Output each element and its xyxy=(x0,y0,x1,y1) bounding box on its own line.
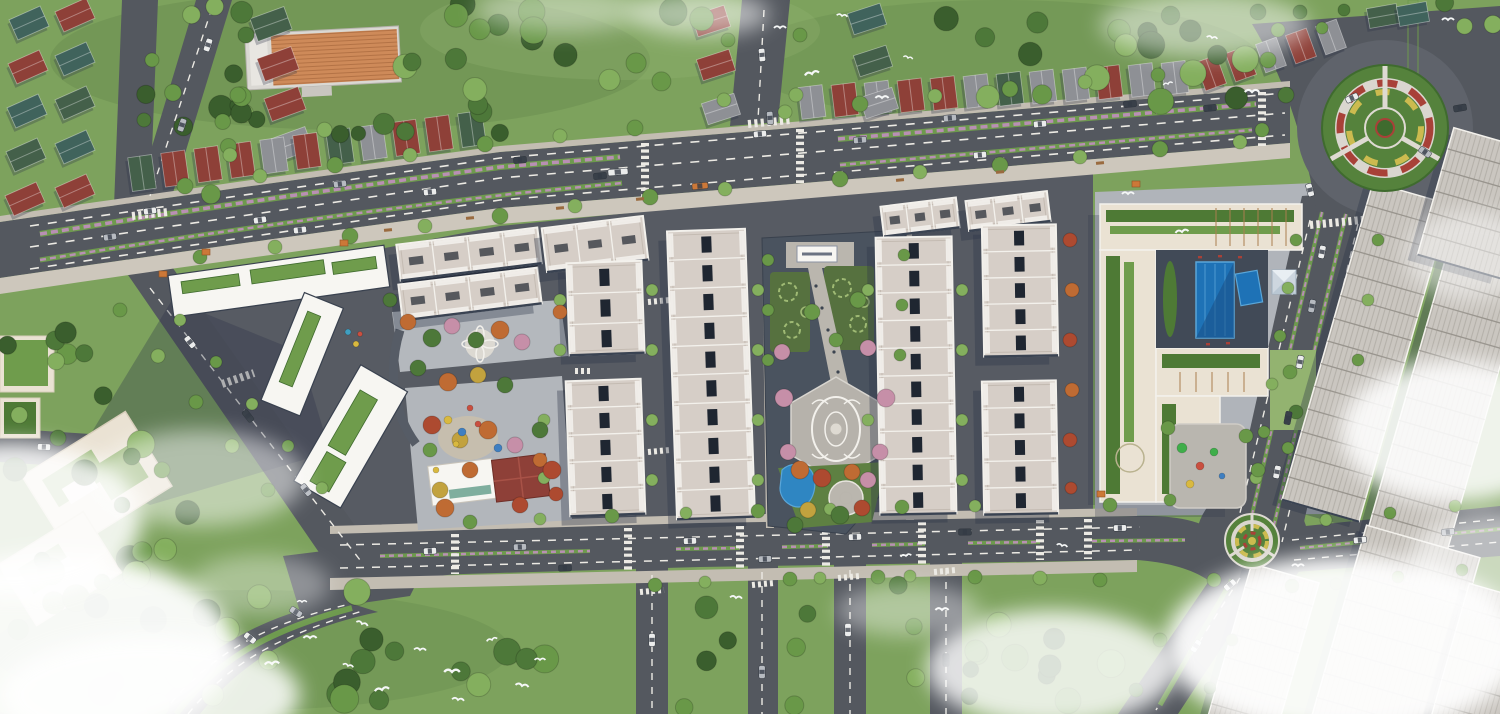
umbrella-canopy xyxy=(159,271,167,277)
tree xyxy=(1352,354,1364,366)
main-roundabout xyxy=(1322,65,1448,191)
tree xyxy=(898,249,910,261)
car xyxy=(973,151,987,159)
tree xyxy=(1384,507,1396,519)
tree xyxy=(699,576,711,588)
tree xyxy=(1063,433,1077,447)
tree xyxy=(48,353,65,370)
tree xyxy=(721,33,735,47)
cloud xyxy=(190,555,330,615)
car xyxy=(1033,120,1047,128)
tree xyxy=(789,88,803,102)
tree xyxy=(804,304,820,320)
swimming-pool-small xyxy=(1235,270,1262,305)
tree xyxy=(183,6,201,24)
tree xyxy=(215,114,231,130)
tree xyxy=(871,570,885,584)
car xyxy=(649,634,655,647)
tree xyxy=(956,344,968,356)
tree xyxy=(956,284,968,296)
tree xyxy=(1225,87,1248,110)
umbrella-canopy xyxy=(340,240,348,246)
tree xyxy=(1362,294,1374,306)
tree xyxy=(800,502,816,518)
car xyxy=(848,534,861,541)
tree xyxy=(516,648,537,669)
tree xyxy=(697,651,717,671)
tree xyxy=(514,334,530,350)
rowhouse-block xyxy=(867,236,957,523)
tree xyxy=(719,632,736,649)
tree xyxy=(553,305,567,319)
tree xyxy=(762,354,774,366)
tree xyxy=(94,387,112,405)
house xyxy=(125,154,157,194)
tree xyxy=(852,96,868,112)
tree xyxy=(752,474,764,486)
tree xyxy=(1152,141,1168,157)
car xyxy=(593,172,607,180)
play-equipment xyxy=(453,441,459,447)
tree xyxy=(230,87,246,103)
tree xyxy=(1316,22,1328,34)
tree xyxy=(201,185,220,204)
tree xyxy=(396,123,414,141)
car xyxy=(1203,104,1217,112)
tree xyxy=(423,416,441,434)
tree xyxy=(793,28,807,42)
rowhouse-block xyxy=(973,380,1058,523)
tree xyxy=(627,120,643,136)
tree xyxy=(554,344,566,356)
car xyxy=(293,226,307,234)
tree xyxy=(1063,333,1077,347)
tree xyxy=(894,349,906,361)
tree xyxy=(332,125,349,142)
tree xyxy=(549,487,563,501)
tree xyxy=(646,284,658,296)
tree xyxy=(507,437,523,453)
tree xyxy=(1063,233,1077,247)
tree xyxy=(383,293,397,307)
cloud xyxy=(836,584,980,636)
tree xyxy=(113,303,127,317)
tree xyxy=(0,336,17,354)
tree xyxy=(1065,482,1077,494)
tree xyxy=(831,506,849,524)
tree xyxy=(268,240,282,254)
car xyxy=(558,565,571,572)
play-equipment xyxy=(433,467,439,473)
tree xyxy=(210,356,222,368)
tree xyxy=(225,65,243,83)
tree xyxy=(751,504,765,518)
tree xyxy=(799,605,816,622)
tree xyxy=(1032,85,1052,105)
tree xyxy=(206,0,224,15)
tree xyxy=(534,513,546,525)
tree xyxy=(695,596,718,619)
tree xyxy=(189,395,203,409)
play-equipment xyxy=(1186,480,1194,488)
tree xyxy=(418,219,432,233)
tree xyxy=(423,329,441,347)
tree xyxy=(410,360,426,376)
tree xyxy=(1164,494,1176,506)
tree xyxy=(470,367,486,383)
tree xyxy=(1239,429,1253,443)
play-equipment xyxy=(444,416,452,424)
tree xyxy=(492,208,508,224)
play-equipment xyxy=(467,405,473,411)
tree xyxy=(762,254,774,266)
tree xyxy=(246,398,258,410)
fountain-center xyxy=(830,423,842,435)
house xyxy=(290,132,322,172)
play-equipment xyxy=(494,444,502,452)
play-equipment xyxy=(1219,473,1225,479)
tree xyxy=(532,422,548,438)
car xyxy=(683,538,696,545)
tree xyxy=(463,78,487,102)
tree xyxy=(680,507,692,519)
house xyxy=(191,146,223,186)
tree xyxy=(860,472,876,488)
tree xyxy=(1258,426,1270,438)
tree xyxy=(913,165,927,179)
tree xyxy=(829,333,843,347)
car xyxy=(753,130,767,138)
tree xyxy=(626,53,646,73)
play-equipment xyxy=(345,329,351,335)
tree xyxy=(1233,135,1247,149)
tree xyxy=(50,430,66,446)
tree xyxy=(1027,12,1048,33)
tree xyxy=(646,474,658,486)
tree xyxy=(423,443,437,457)
car xyxy=(853,136,867,144)
tree xyxy=(785,696,804,714)
tree xyxy=(1018,42,1042,66)
tree xyxy=(642,189,658,205)
car xyxy=(513,156,527,164)
aerial-masterplan-render xyxy=(0,0,1500,714)
tree xyxy=(895,500,909,514)
tree xyxy=(445,48,466,69)
tree xyxy=(231,1,253,23)
tree xyxy=(1065,383,1079,397)
tree xyxy=(780,444,796,460)
tree xyxy=(1151,68,1165,82)
car xyxy=(758,48,766,62)
tree xyxy=(1161,421,1175,435)
tree xyxy=(717,93,731,107)
tree xyxy=(1282,282,1294,294)
tree xyxy=(1266,378,1278,390)
tree xyxy=(1372,234,1384,246)
tree xyxy=(814,572,826,584)
tree xyxy=(791,461,809,479)
car xyxy=(758,556,771,563)
tree xyxy=(436,499,454,517)
tree xyxy=(1148,88,1174,114)
tree xyxy=(1002,81,1018,97)
tree xyxy=(439,373,457,391)
tree xyxy=(432,482,448,498)
tree xyxy=(543,461,561,479)
south-playground xyxy=(1170,424,1246,508)
play-equipment xyxy=(1177,443,1187,453)
tree xyxy=(646,414,658,426)
tree xyxy=(568,199,582,213)
tree xyxy=(872,444,888,460)
tree xyxy=(1278,87,1294,103)
tree xyxy=(497,377,513,393)
tree xyxy=(652,72,671,91)
tree xyxy=(360,628,383,651)
tree xyxy=(385,642,404,661)
tree xyxy=(904,570,916,582)
tree xyxy=(844,464,860,480)
tree xyxy=(976,85,999,108)
umbrella-canopy xyxy=(1132,181,1140,187)
tree xyxy=(1260,52,1276,68)
play-equipment xyxy=(458,428,466,436)
tree xyxy=(462,462,478,478)
tree xyxy=(174,314,186,326)
tree xyxy=(783,572,797,586)
tree xyxy=(1282,442,1294,454)
tree xyxy=(11,407,28,424)
tree xyxy=(934,6,958,30)
tree xyxy=(1255,123,1269,137)
tree xyxy=(1283,365,1297,379)
umbrella-canopy xyxy=(1097,491,1105,497)
tree xyxy=(860,340,876,356)
tree xyxy=(444,4,468,28)
car xyxy=(692,182,708,190)
tree xyxy=(463,515,477,529)
tree xyxy=(1251,463,1265,477)
tree xyxy=(1457,18,1473,34)
tree xyxy=(646,344,658,356)
tree xyxy=(787,638,806,657)
tree xyxy=(177,178,193,194)
tree xyxy=(145,53,159,67)
tree xyxy=(752,344,764,356)
umbrella-canopy xyxy=(202,249,210,255)
car xyxy=(958,529,971,536)
tree xyxy=(137,85,155,103)
scene-svg xyxy=(0,0,1500,714)
tree xyxy=(223,148,237,162)
tree xyxy=(512,497,528,513)
tree xyxy=(832,171,848,187)
tree xyxy=(1484,15,1500,33)
tree xyxy=(928,89,942,103)
tree xyxy=(238,27,254,43)
tree xyxy=(1093,573,1107,587)
tree xyxy=(1290,234,1302,246)
tree xyxy=(1065,283,1079,297)
tree xyxy=(752,284,764,296)
tree xyxy=(896,299,908,311)
tree xyxy=(330,685,359,714)
car xyxy=(943,114,957,122)
tree xyxy=(554,43,577,66)
tree xyxy=(491,321,509,339)
car xyxy=(766,111,773,124)
tree xyxy=(403,148,417,162)
rowhouse-block xyxy=(658,229,755,529)
tree xyxy=(775,389,793,407)
tree xyxy=(1274,330,1286,342)
rowhouse-block xyxy=(557,261,644,365)
tree xyxy=(165,84,182,101)
tree xyxy=(968,570,982,584)
car xyxy=(1113,525,1126,532)
tree xyxy=(469,19,490,40)
tree xyxy=(862,414,874,426)
car xyxy=(513,544,526,551)
cloud xyxy=(95,430,305,526)
tree xyxy=(975,28,994,47)
tree xyxy=(467,673,491,697)
car xyxy=(759,666,765,679)
tree xyxy=(316,482,328,494)
tree xyxy=(553,129,567,143)
play-equipment xyxy=(1196,462,1204,470)
tree xyxy=(317,122,332,137)
tree xyxy=(468,332,484,348)
rowhouse-block xyxy=(973,224,1058,365)
tree xyxy=(752,414,764,426)
play-equipment xyxy=(475,421,481,427)
play-equipment xyxy=(353,341,359,347)
tree xyxy=(648,578,662,592)
car xyxy=(1123,100,1137,108)
tree xyxy=(605,509,619,523)
tree xyxy=(1103,498,1117,512)
tree xyxy=(675,699,693,714)
tree xyxy=(253,169,267,183)
tree xyxy=(151,349,165,363)
south-roundabout xyxy=(1225,514,1279,568)
tree xyxy=(369,690,388,709)
tree xyxy=(850,292,866,308)
play-equipment xyxy=(1210,448,1218,456)
tree xyxy=(1180,60,1206,86)
car xyxy=(423,188,437,196)
tree xyxy=(344,579,371,606)
tree xyxy=(400,314,416,330)
tree xyxy=(479,421,497,439)
tree xyxy=(1078,75,1092,89)
rowhouse-block xyxy=(557,379,646,526)
play-equipment xyxy=(358,332,363,337)
tree xyxy=(813,469,831,487)
tree xyxy=(1073,150,1087,164)
tree xyxy=(956,474,968,486)
house xyxy=(894,78,925,116)
tree xyxy=(76,345,93,362)
tree xyxy=(327,157,343,173)
tree xyxy=(969,500,981,512)
house xyxy=(422,115,454,155)
tree xyxy=(373,113,394,134)
tree xyxy=(956,414,968,426)
tree xyxy=(1320,514,1332,526)
tree xyxy=(599,69,620,90)
tree xyxy=(787,517,803,533)
tree xyxy=(1338,4,1350,16)
tree xyxy=(403,53,421,71)
tree xyxy=(854,500,870,516)
tree xyxy=(55,322,76,343)
tree xyxy=(154,538,177,561)
tree xyxy=(351,649,376,674)
tree xyxy=(778,105,792,119)
tree xyxy=(444,318,460,334)
tree xyxy=(774,344,790,360)
car xyxy=(1353,536,1367,544)
tree xyxy=(762,304,774,316)
tree xyxy=(554,294,566,306)
tree xyxy=(907,669,925,687)
car xyxy=(423,547,436,554)
tree xyxy=(491,124,508,141)
tree xyxy=(877,389,895,407)
tree xyxy=(137,113,151,127)
tree xyxy=(1033,571,1047,585)
tree xyxy=(718,182,732,196)
tree xyxy=(351,126,366,141)
tree xyxy=(477,136,493,152)
